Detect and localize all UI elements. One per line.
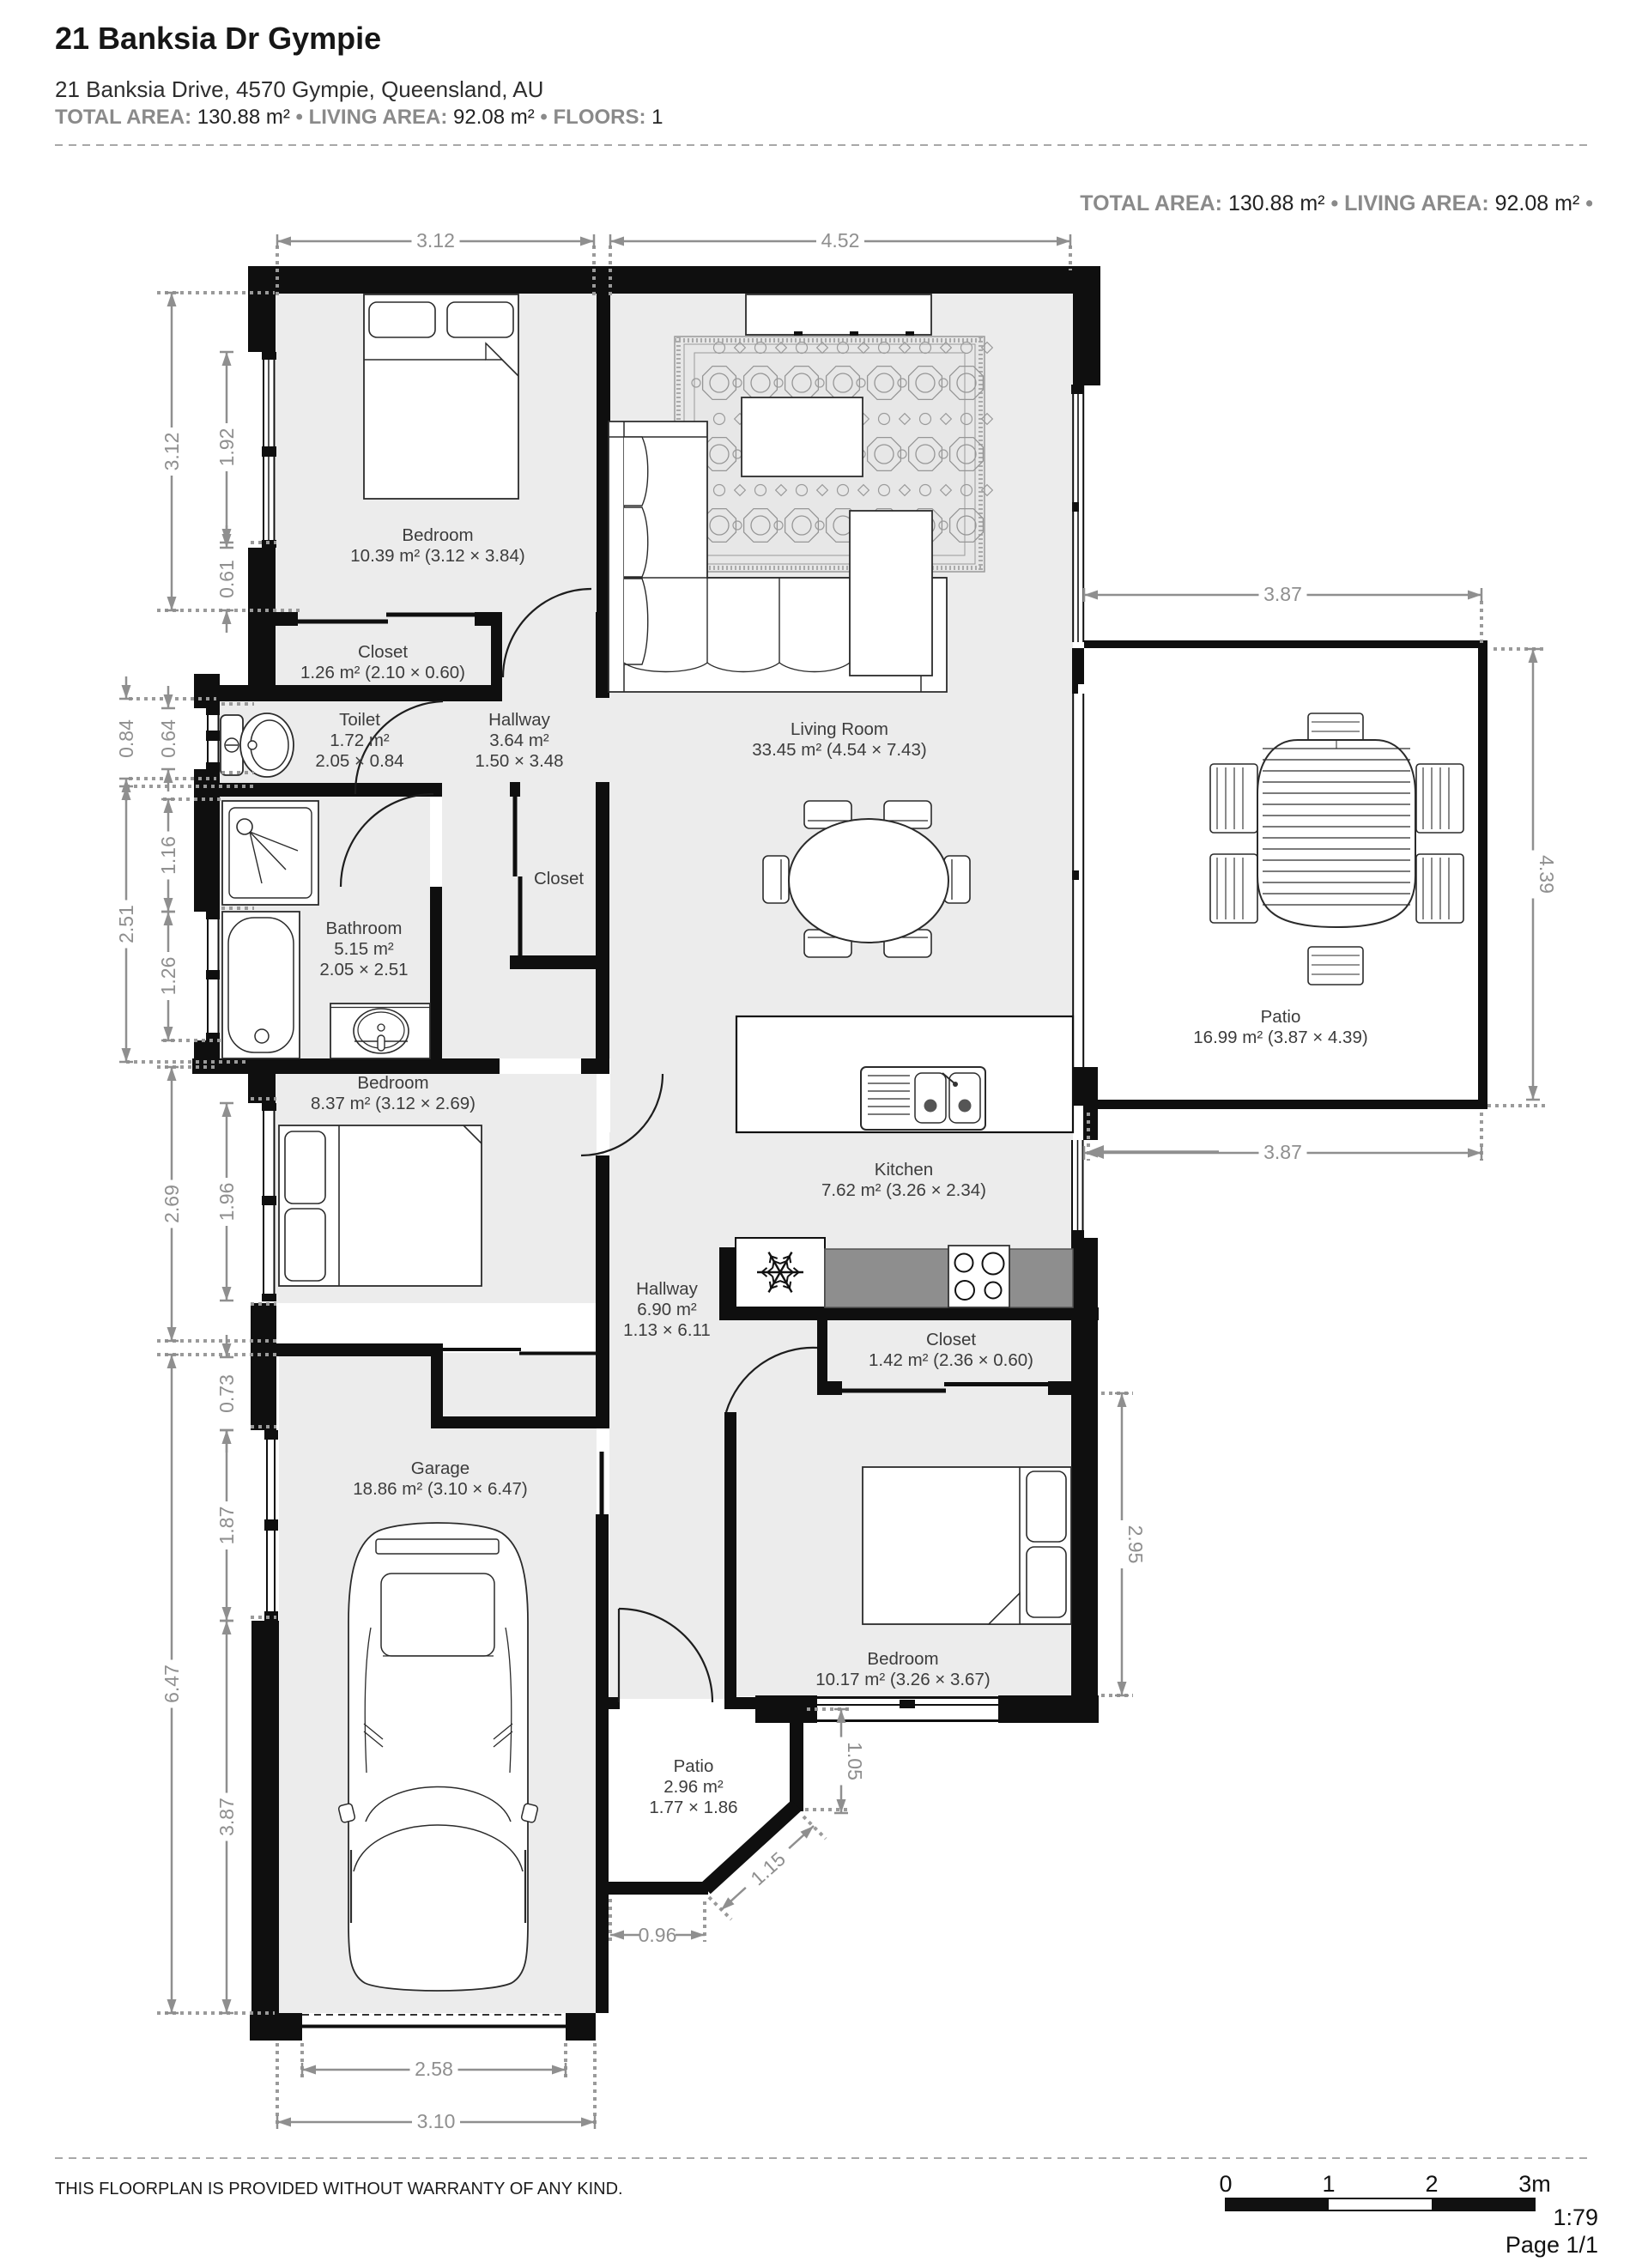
svg-text:2.96 m²: 2.96 m²	[663, 1777, 724, 1797]
svg-text:0.84: 0.84	[115, 719, 137, 758]
svg-text:Living Room: Living Room	[791, 719, 888, 739]
svg-text:Page 1/1: Page 1/1	[1506, 2232, 1598, 2258]
svg-text:8.37 m² (3.12 × 2.69): 8.37 m² (3.12 × 2.69)	[311, 1094, 476, 1113]
svg-text:1.50 × 3.48: 1.50 × 3.48	[475, 751, 563, 771]
svg-text:21 Banksia Drive, 4570 Gympie,: 21 Banksia Drive, 4570 Gympie, Queenslan…	[55, 76, 543, 102]
svg-text:3.12: 3.12	[161, 433, 183, 471]
svg-text:0: 0	[1219, 2171, 1232, 2197]
svg-text:Bathroom: Bathroom	[326, 919, 403, 938]
svg-text:3.64 m²: 3.64 m²	[489, 731, 549, 750]
svg-text:4.39: 4.39	[1536, 855, 1558, 894]
svg-text:TOTAL AREA: 130.88 m² • LIVING: TOTAL AREA: 130.88 m² • LIVING AREA: 92.…	[55, 106, 663, 129]
svg-text:2.05 × 2.51: 2.05 × 2.51	[319, 960, 408, 979]
svg-text:Closet: Closet	[358, 642, 408, 662]
svg-text:0.61: 0.61	[215, 560, 238, 598]
svg-text:33.45 m² (4.54 × 7.43): 33.45 m² (4.54 × 7.43)	[752, 740, 926, 760]
svg-text:2.95: 2.95	[1124, 1525, 1147, 1564]
svg-text:TOTAL AREA: 130.88 m² • LIVING: TOTAL AREA: 130.88 m² • LIVING AREA: 92.…	[1080, 191, 1593, 215]
svg-text:6.47: 6.47	[161, 1665, 183, 1703]
svg-text:3.87: 3.87	[1263, 583, 1302, 605]
svg-text:2: 2	[1425, 2171, 1438, 2197]
svg-text:5.15 m²: 5.15 m²	[334, 939, 394, 959]
svg-text:1.87: 1.87	[215, 1507, 238, 1545]
svg-text:1:79: 1:79	[1553, 2204, 1598, 2230]
svg-text:1.16: 1.16	[157, 836, 179, 875]
svg-text:1.26 m² (2.10 × 0.60): 1.26 m² (2.10 × 0.60)	[300, 663, 465, 682]
svg-text:6.90 m²: 6.90 m²	[637, 1300, 697, 1319]
svg-text:3.87: 3.87	[215, 1798, 238, 1836]
svg-text:Bedroom: Bedroom	[402, 525, 473, 545]
svg-text:3.87: 3.87	[1263, 1141, 1302, 1163]
svg-text:Kitchen: Kitchen	[875, 1160, 933, 1179]
svg-text:Hallway: Hallway	[488, 710, 551, 730]
svg-text:Garage: Garage	[411, 1458, 470, 1478]
svg-text:16.99 m² (3.87 × 4.39): 16.99 m² (3.87 × 4.39)	[1193, 1028, 1367, 1047]
svg-text:Hallway: Hallway	[636, 1279, 699, 1299]
svg-text:21 Banksia Dr Gympie: 21 Banksia Dr Gympie	[55, 21, 381, 56]
svg-text:1.13 × 6.11: 1.13 × 6.11	[623, 1320, 711, 1340]
svg-text:0.96: 0.96	[639, 1924, 677, 1946]
svg-text:Closet: Closet	[926, 1330, 976, 1349]
svg-text:2.51: 2.51	[115, 905, 137, 943]
svg-text:1.96: 1.96	[215, 1183, 238, 1222]
svg-text:3m: 3m	[1518, 2171, 1551, 2197]
svg-text:0.64: 0.64	[157, 719, 179, 758]
svg-text:3.10: 3.10	[417, 2110, 456, 2132]
svg-text:Bedroom: Bedroom	[357, 1073, 428, 1093]
svg-text:18.86 m² (3.10 × 6.47): 18.86 m² (3.10 × 6.47)	[353, 1479, 527, 1499]
svg-text:2.58: 2.58	[415, 2058, 453, 2080]
svg-text:Patio: Patio	[674, 1756, 714, 1776]
svg-text:1.72 m²: 1.72 m²	[330, 731, 390, 750]
svg-text:2.05 × 0.84: 2.05 × 0.84	[315, 751, 403, 771]
svg-text:1.26: 1.26	[157, 957, 179, 996]
svg-text:1.77 × 1.86: 1.77 × 1.86	[649, 1798, 737, 1817]
svg-text:THIS FLOORPLAN IS PROVIDED WIT: THIS FLOORPLAN IS PROVIDED WITHOUT WARRA…	[55, 2180, 623, 2198]
svg-text:Closet: Closet	[534, 869, 584, 888]
svg-text:Patio: Patio	[1261, 1007, 1301, 1027]
svg-text:2.69: 2.69	[161, 1185, 183, 1223]
svg-text:10.39 m² (3.12 × 3.84): 10.39 m² (3.12 × 3.84)	[350, 546, 524, 566]
svg-text:1.05: 1.05	[844, 1742, 866, 1780]
svg-text:1: 1	[1322, 2171, 1335, 2197]
svg-text:3.12: 3.12	[416, 229, 455, 252]
svg-text:7.62 m² (3.26 × 2.34): 7.62 m² (3.26 × 2.34)	[821, 1180, 986, 1200]
svg-text:1.92: 1.92	[215, 428, 238, 467]
svg-text:Toilet: Toilet	[339, 710, 380, 730]
svg-text:Bedroom: Bedroom	[867, 1649, 938, 1669]
svg-text:4.52: 4.52	[821, 229, 860, 252]
svg-text:10.17 m² (3.26 × 3.67): 10.17 m² (3.26 × 3.67)	[815, 1670, 990, 1689]
svg-text:0.73: 0.73	[215, 1374, 238, 1413]
svg-text:1.42 m² (2.36 × 0.60): 1.42 m² (2.36 × 0.60)	[869, 1350, 1033, 1370]
